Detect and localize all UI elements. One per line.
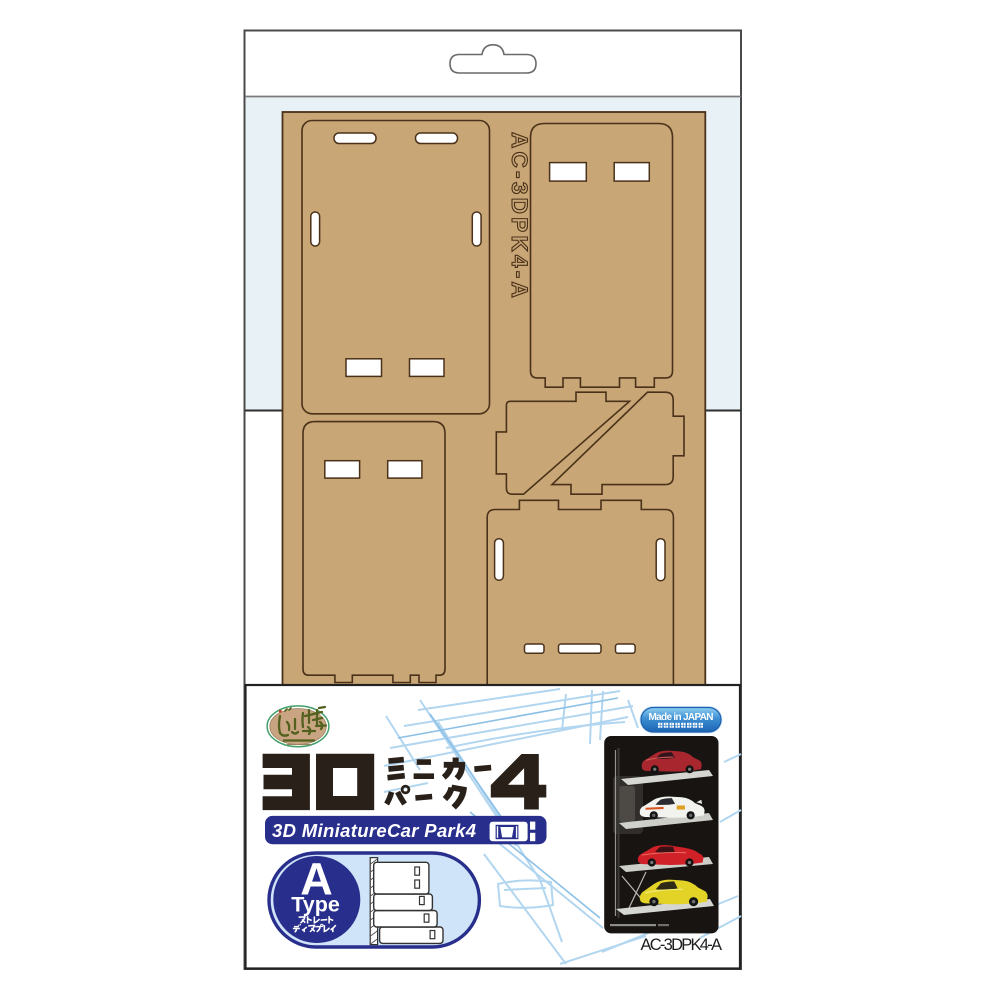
svg-text:Made in JAPAN: Made in JAPAN <box>649 712 714 723</box>
svg-text:Type: Type <box>291 893 340 917</box>
svg-text:3D MiniatureCar Park4: 3D MiniatureCar Park4 <box>272 820 476 841</box>
svg-text:AC-3DPK4-A: AC-3DPK4-A <box>641 936 723 954</box>
